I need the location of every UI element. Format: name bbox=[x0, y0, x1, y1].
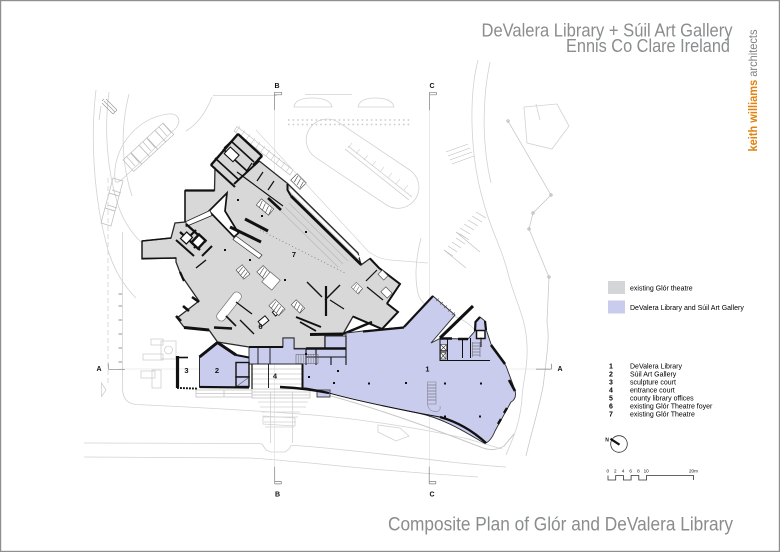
svg-text:6: 6 bbox=[258, 322, 262, 331]
svg-text:10: 10 bbox=[644, 469, 650, 474]
svg-text:2: 2 bbox=[609, 372, 613, 379]
svg-text:1: 1 bbox=[425, 365, 429, 374]
svg-text:8: 8 bbox=[637, 469, 640, 474]
svg-text:N: N bbox=[605, 438, 609, 444]
svg-text:4: 4 bbox=[622, 469, 625, 474]
svg-text:county library offices: county library offices bbox=[630, 396, 694, 403]
svg-text:6: 6 bbox=[629, 469, 632, 474]
svg-text:B: B bbox=[275, 492, 280, 499]
svg-text:3: 3 bbox=[184, 366, 188, 375]
svg-text:2: 2 bbox=[215, 366, 219, 375]
svg-text:B: B bbox=[274, 83, 279, 90]
svg-text:1: 1 bbox=[609, 364, 613, 371]
svg-text:A: A bbox=[557, 366, 562, 373]
svg-text:DeValera Library and Súil Art: DeValera Library and Súil Art Gallery bbox=[630, 305, 744, 312]
svg-text:5: 5 bbox=[609, 396, 613, 403]
svg-text:existing Glór Theatre: existing Glór Theatre bbox=[630, 412, 695, 419]
svg-text:A: A bbox=[96, 366, 101, 373]
svg-text:Ennis Co Clare Ireland: Ennis Co Clare Ireland bbox=[566, 35, 730, 56]
svg-text:DeValera Library: DeValera Library bbox=[630, 364, 683, 371]
svg-text:6: 6 bbox=[609, 404, 613, 411]
svg-text:Composite Plan of Glór and DeV: Composite Plan of Glór and DeValera Libr… bbox=[388, 515, 733, 536]
svg-text:Súil Art Gallery: Súil Art Gallery bbox=[630, 372, 677, 379]
svg-text:3: 3 bbox=[609, 380, 613, 387]
svg-text:4: 4 bbox=[609, 388, 613, 395]
svg-text:existing Glór Theatre foyer: existing Glór Theatre foyer bbox=[630, 404, 713, 411]
svg-text:C: C bbox=[429, 83, 434, 90]
svg-text:7: 7 bbox=[292, 250, 296, 259]
svg-text:C: C bbox=[429, 492, 434, 499]
svg-text:sculpture court: sculpture court bbox=[630, 380, 676, 387]
svg-text:0: 0 bbox=[607, 469, 610, 474]
svg-text:20m: 20m bbox=[689, 469, 698, 474]
svg-text:entrance court: entrance court bbox=[630, 388, 675, 395]
svg-text:7: 7 bbox=[609, 412, 613, 419]
svg-text:existing Glór theatre: existing Glór theatre bbox=[630, 286, 693, 293]
svg-text:2: 2 bbox=[614, 469, 617, 474]
svg-text:keith williams architects: keith williams architects bbox=[746, 30, 760, 152]
